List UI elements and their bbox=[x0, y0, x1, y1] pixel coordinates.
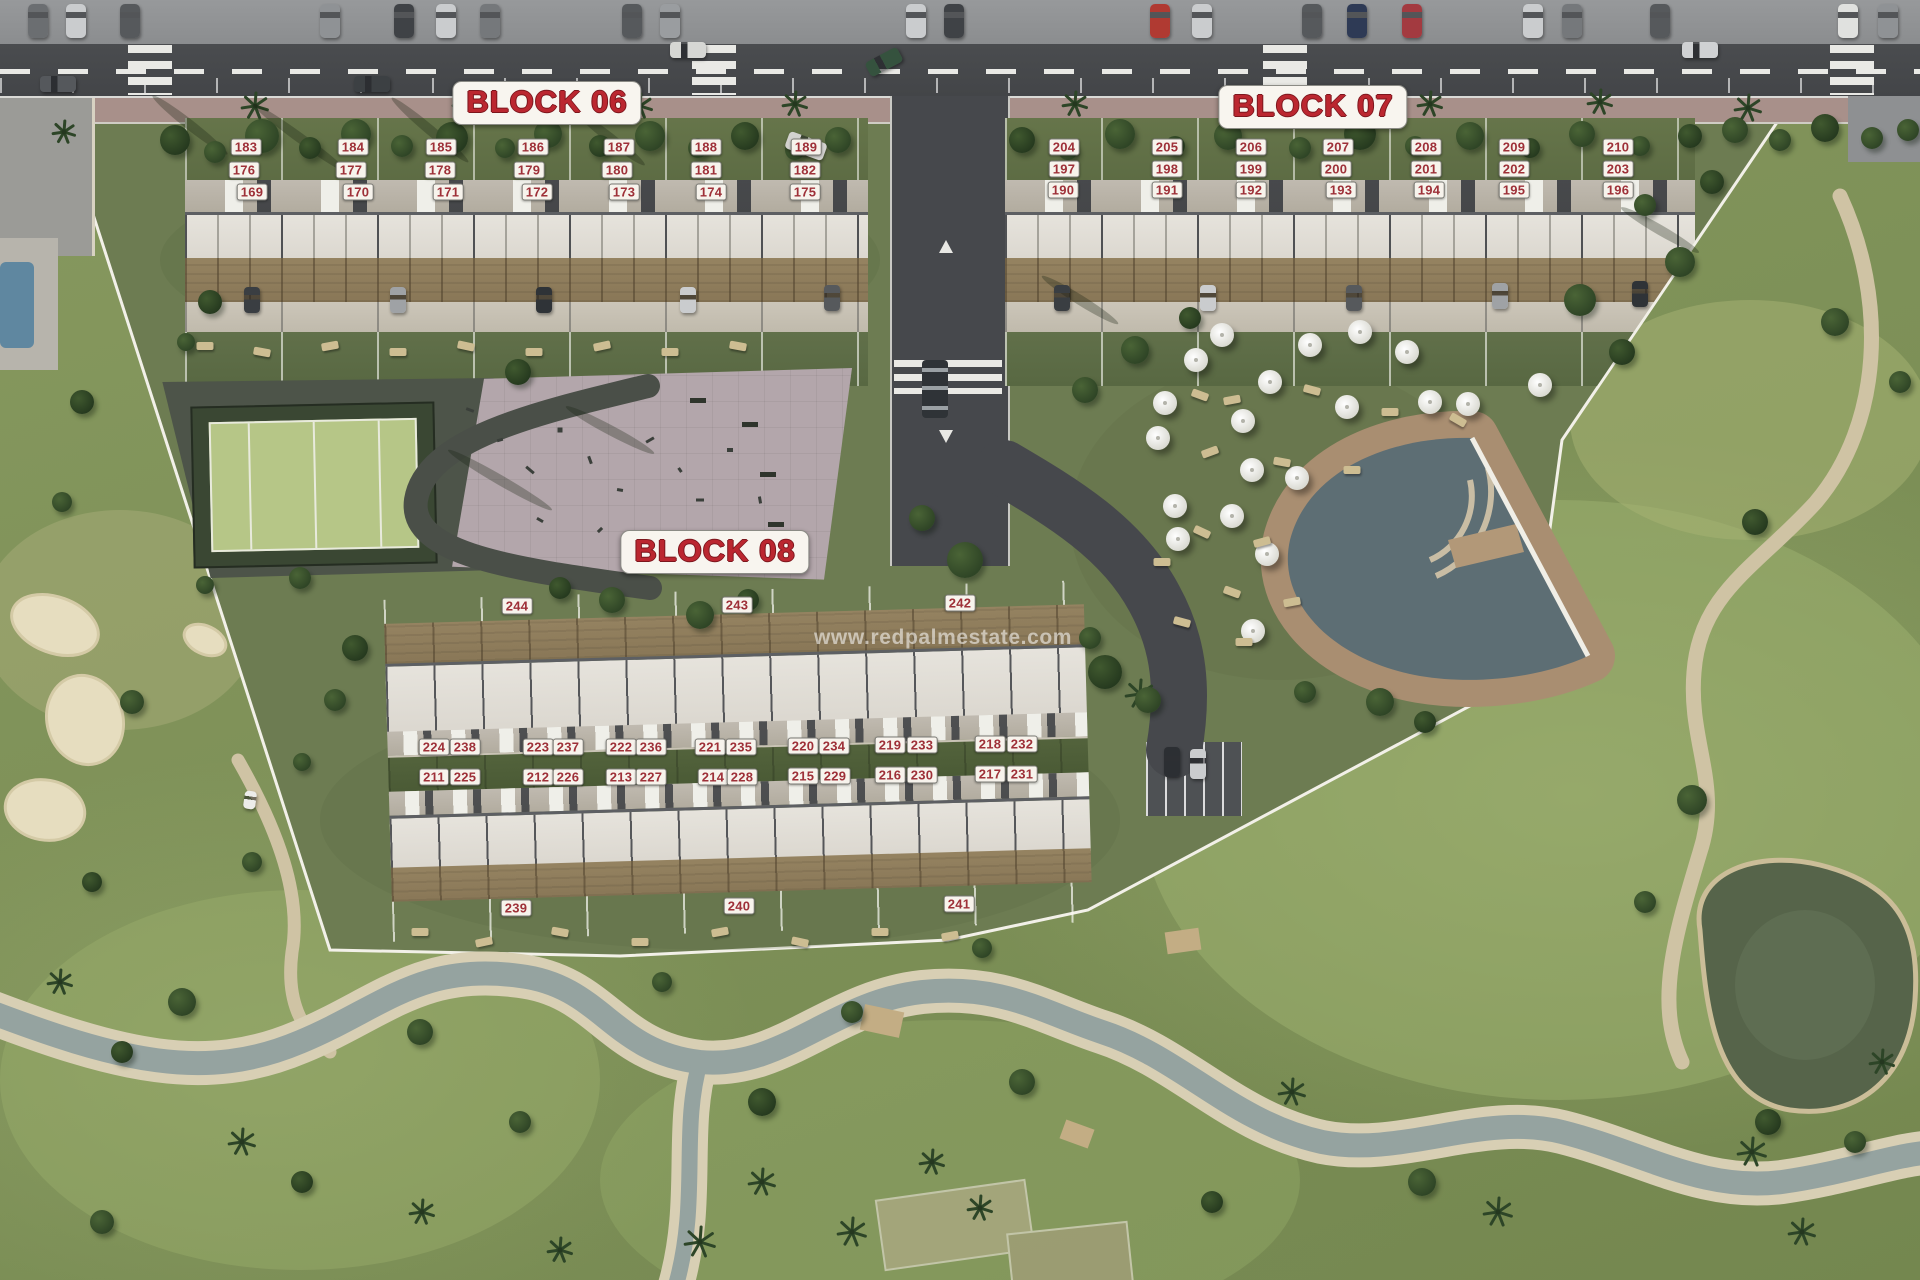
unit-marker-236: 236 bbox=[636, 739, 667, 756]
unit-marker-185: 185 bbox=[426, 139, 457, 156]
unit-marker-216: 216 bbox=[875, 767, 906, 784]
unit-marker-192: 192 bbox=[1236, 182, 1267, 199]
unit-marker-215: 215 bbox=[788, 768, 819, 785]
unit-marker-174: 174 bbox=[696, 184, 727, 201]
unit-marker-188: 188 bbox=[691, 139, 722, 156]
unit-marker-201: 201 bbox=[1411, 161, 1442, 178]
unit-marker-217: 217 bbox=[975, 766, 1006, 783]
site-plan: BLOCK 0618318418518618718818917617717817… bbox=[0, 0, 1920, 1280]
block-07-label: BLOCK 07 bbox=[1218, 85, 1407, 129]
unit-marker-197: 197 bbox=[1049, 161, 1080, 178]
unit-marker-187: 187 bbox=[604, 139, 635, 156]
unit-marker-223: 223 bbox=[523, 739, 554, 756]
unit-marker-211: 211 bbox=[419, 769, 449, 786]
unit-marker-181: 181 bbox=[691, 162, 722, 179]
unit-marker-243: 243 bbox=[722, 597, 753, 614]
unit-marker-219: 219 bbox=[875, 737, 906, 754]
unit-marker-191: 191 bbox=[1152, 182, 1183, 199]
unit-marker-171: 171 bbox=[433, 184, 464, 201]
unit-marker-209: 209 bbox=[1499, 139, 1530, 156]
unit-marker-208: 208 bbox=[1411, 139, 1442, 156]
unit-marker-189: 189 bbox=[791, 139, 822, 156]
watermark: www.redpalmestate.com bbox=[814, 626, 1072, 650]
unit-marker-198: 198 bbox=[1152, 161, 1183, 178]
unit-marker-172: 172 bbox=[522, 184, 553, 201]
unit-marker-175: 175 bbox=[790, 184, 821, 201]
unit-marker-227: 227 bbox=[636, 769, 667, 786]
unit-marker-180: 180 bbox=[602, 162, 633, 179]
unit-marker-221: 221 bbox=[695, 739, 726, 756]
unit-marker-194: 194 bbox=[1414, 182, 1445, 199]
unit-marker-195: 195 bbox=[1499, 182, 1530, 199]
unit-marker-220: 220 bbox=[788, 738, 819, 755]
unit-marker-193: 193 bbox=[1326, 182, 1357, 199]
unit-marker-177: 177 bbox=[336, 162, 367, 179]
unit-marker-244: 244 bbox=[502, 598, 533, 615]
unit-marker-206: 206 bbox=[1236, 139, 1267, 156]
unit-marker-235: 235 bbox=[726, 739, 757, 756]
unit-marker-186: 186 bbox=[518, 139, 549, 156]
unit-marker-183: 183 bbox=[231, 139, 262, 156]
unit-marker-231: 231 bbox=[1007, 766, 1038, 783]
unit-marker-237: 237 bbox=[553, 739, 584, 756]
unit-marker-225: 225 bbox=[450, 769, 481, 786]
unit-marker-213: 213 bbox=[606, 769, 637, 786]
unit-marker-230: 230 bbox=[907, 767, 938, 784]
unit-marker-232: 232 bbox=[1007, 736, 1038, 753]
unit-marker-179: 179 bbox=[514, 162, 545, 179]
unit-marker-233: 233 bbox=[907, 737, 938, 754]
unit-marker-240: 240 bbox=[724, 898, 755, 915]
block-06-label: BLOCK 06 bbox=[452, 81, 641, 125]
unit-marker-184: 184 bbox=[338, 139, 369, 156]
unit-marker-224: 224 bbox=[419, 739, 450, 756]
unit-marker-202: 202 bbox=[1499, 161, 1530, 178]
unit-marker-173: 173 bbox=[609, 184, 640, 201]
unit-marker-222: 222 bbox=[606, 739, 637, 756]
unit-marker-218: 218 bbox=[975, 736, 1006, 753]
unit-marker-178: 178 bbox=[425, 162, 456, 179]
unit-marker-214: 214 bbox=[698, 769, 729, 786]
unit-marker-228: 228 bbox=[727, 769, 758, 786]
unit-marker-200: 200 bbox=[1321, 161, 1352, 178]
block-08-label: BLOCK 08 bbox=[620, 530, 809, 574]
unit-marker-238: 238 bbox=[450, 739, 481, 756]
unit-marker-229: 229 bbox=[820, 768, 851, 785]
unit-marker-205: 205 bbox=[1152, 139, 1183, 156]
unit-marker-170: 170 bbox=[343, 184, 374, 201]
unit-marker-207: 207 bbox=[1323, 139, 1354, 156]
unit-marker-169: 169 bbox=[237, 184, 268, 201]
unit-marker-182: 182 bbox=[790, 162, 821, 179]
unit-marker-204: 204 bbox=[1049, 139, 1080, 156]
unit-marker-239: 239 bbox=[501, 900, 532, 917]
unit-marker-199: 199 bbox=[1236, 161, 1267, 178]
unit-marker-242: 242 bbox=[945, 595, 976, 612]
unit-marker-212: 212 bbox=[523, 769, 554, 786]
unit-marker-190: 190 bbox=[1048, 182, 1079, 199]
unit-marker-203: 203 bbox=[1603, 161, 1634, 178]
unit-marker-210: 210 bbox=[1603, 139, 1634, 156]
unit-marker-226: 226 bbox=[553, 769, 584, 786]
unit-marker-241: 241 bbox=[944, 896, 975, 913]
unit-marker-196: 196 bbox=[1603, 182, 1634, 199]
unit-marker-234: 234 bbox=[819, 738, 850, 755]
unit-marker-176: 176 bbox=[229, 162, 260, 179]
